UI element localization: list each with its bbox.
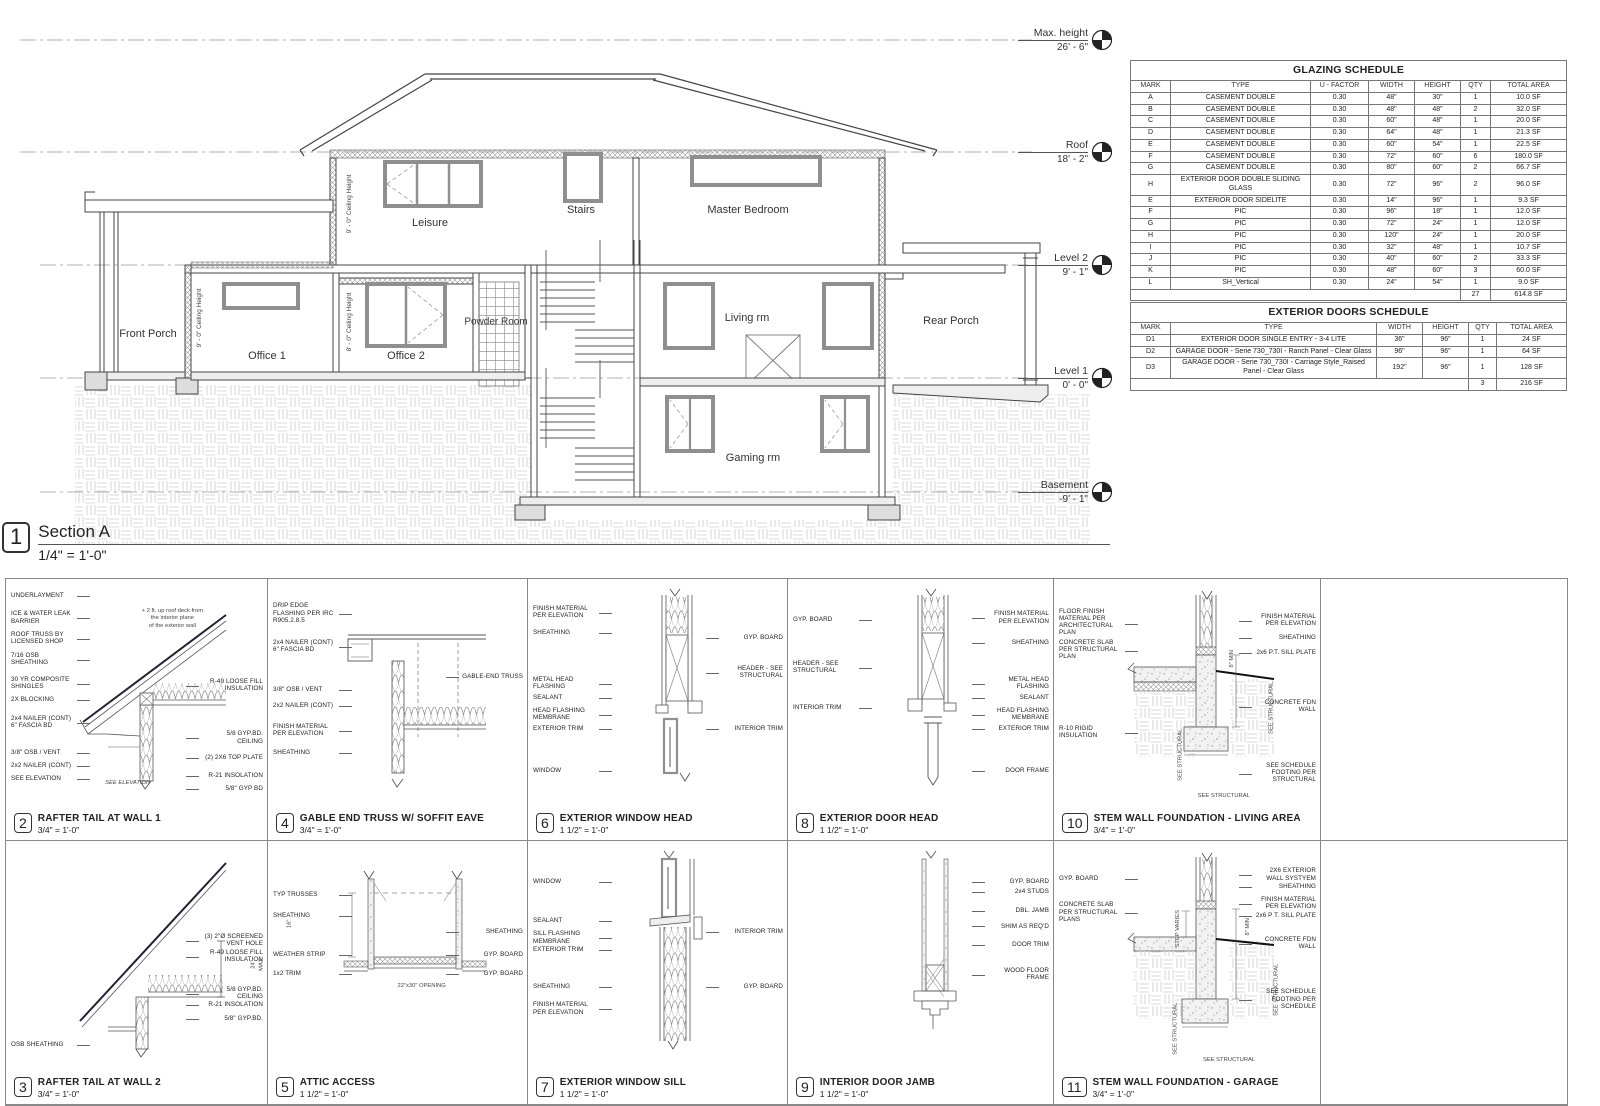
detail-annotation: CONCRETE FDN WALL (1252, 699, 1316, 713)
table-cell: 0.30 (1311, 163, 1369, 175)
level-datum-icon (1091, 141, 1113, 163)
detail-number-badge: 7 (536, 1077, 554, 1097)
detail-number-badge: 5 (276, 1077, 294, 1097)
detail-titleblock: 5ATTIC ACCESS1 1/2" = 1'-0" (276, 1077, 375, 1099)
level-elevation: -9' - 1" (1018, 493, 1088, 505)
detail-annotation: CONCRETE FDN WALL (1252, 936, 1316, 950)
detail-annotation: 5/8" GYP.BD. (199, 1015, 263, 1022)
detail-annotation: SEALANT (985, 694, 1049, 701)
detail-titleblock: 4GABLE END TRUSS W/ SOFFIT EAVE3/4" = 1'… (276, 813, 484, 835)
detail-title: STEM WALL FOUNDATION - GARAGE (1093, 1077, 1279, 1088)
detail-annotation: 7/16 OSB SHEATHING (11, 652, 77, 666)
detail-annotation: ICE & WATER LEAK BARRIER (11, 610, 77, 624)
detail-annotation: GYP. BOARD (719, 634, 783, 641)
detail-annotation: GYP. BOARD (459, 970, 523, 977)
table-cell: F (1131, 207, 1171, 219)
table-row: EEXTERIOR DOOR SIDELITE0.3014"96"19.3 SF (1131, 195, 1567, 207)
table-cell: 60" (1369, 116, 1415, 128)
table-cell: 120" (1369, 230, 1415, 242)
table-row: DCASEMENT DOUBLE0.3064"48"121.3 SF (1131, 128, 1567, 140)
table-cell: 48" (1415, 116, 1461, 128)
detail-title: RAFTER TAIL AT WALL 2 (38, 1077, 161, 1088)
table-cell: 96" (1423, 346, 1469, 358)
table-cell: D (1131, 128, 1171, 140)
drawing-sheet: Front PorchOffice 1Office 2Powder RoomLe… (0, 0, 1600, 1106)
detail-annotation: 3/8" OSB / VENT (273, 686, 339, 693)
detail-annotation: DRIP EDGE FLASHING PER IRC R905.2.8.5 (273, 602, 339, 624)
detail-scale: 3/4" = 1'-0" (38, 825, 161, 835)
table-cell: CASEMENT DOUBLE (1171, 163, 1311, 175)
table-cell: 48" (1369, 92, 1415, 104)
detail-annotation: 5/8 GYP.BD. CEILING (199, 730, 263, 744)
detail-annotation: 1x2 TRIM (273, 970, 339, 977)
detail-note: SEE STRUCTURAL (1203, 1057, 1255, 1065)
table-cell: 1 (1461, 219, 1491, 231)
detail-title: ATTIC ACCESS (300, 1077, 375, 1088)
detail-number-badge: 11 (1062, 1077, 1087, 1097)
table-cell: 14" (1369, 195, 1415, 207)
detail-annotation: SHEATHING (1252, 634, 1316, 641)
detail-annotation: SHEATHING (273, 749, 339, 756)
table-cell: 0.30 (1311, 116, 1369, 128)
detail-note: SEE STRUCTURAL (1198, 793, 1250, 801)
table-cell: 24 SF (1497, 334, 1567, 346)
table-cell: D1 (1131, 334, 1171, 346)
detail-titleblock: 3RAFTER TAIL AT WALL 23/4" = 1'-0" (14, 1077, 161, 1099)
detail-annotation: GYP. BOARD (985, 878, 1049, 885)
detail-annotation: SHEATHING (1252, 883, 1316, 890)
level-datum-icon (1091, 254, 1113, 276)
table-cell: EXTERIOR DOOR DOUBLE SLIDING GLASS (1171, 175, 1311, 196)
detail-annotation: METAL HEAD FLASHING (533, 676, 599, 690)
level-name: Level 2 (1018, 252, 1088, 266)
section-a-drawing: Front PorchOffice 1Office 2Powder RoomLe… (0, 0, 1110, 578)
detail-annotation: EXTERIOR TRIM (985, 725, 1049, 732)
table-cell: 96" (1415, 175, 1461, 196)
table-cell: PIC (1171, 230, 1311, 242)
detail-note: SEE STRUCTURAL (1177, 729, 1185, 781)
table-cell: 1 (1461, 195, 1491, 207)
ceiling-height-label: 8' - 0" Ceiling Height (346, 293, 354, 352)
detail-note: 22"x30" OPENING (398, 983, 446, 991)
detail-annotation: GYP. BOARD (1059, 875, 1125, 882)
detail-annotation: SEALANT (533, 917, 599, 924)
table-cell: 180.0 SF (1491, 151, 1567, 163)
table-cell: 96.0 SF (1491, 175, 1567, 196)
detail-annotation: (3) 2"Ø SCREENED VENT HOLE (199, 933, 263, 947)
table-cell: 66.7 SF (1491, 163, 1567, 175)
detail-annotation: SHEATHING (533, 629, 599, 636)
table-cell: 48" (1415, 242, 1461, 254)
detail-sketch (600, 849, 750, 1059)
detail-titleblock: 2RAFTER TAIL AT WALL 13/4" = 1'-0" (14, 813, 161, 835)
detail-annotation: SHEATHING (459, 928, 523, 935)
detail-cell-9: GYP. BOARD2x4 STUDSDBL. JAMBSHIM AS REQ'… (788, 841, 1054, 1105)
detail-cell-7: WINDOWSEALANTSILL FLASHING MEMBRANEEXTER… (528, 841, 788, 1105)
detail-number-badge: 10 (1062, 813, 1088, 833)
table-cell: 0.30 (1311, 175, 1369, 196)
detail-scale: 1 1/2" = 1'-0" (560, 1089, 686, 1099)
detail-annotation: SHEATHING (273, 912, 339, 919)
table-cell: 24" (1415, 219, 1461, 231)
section-scale: 1/4" = 1'-0" (38, 545, 1110, 563)
detail-cell-5: TYP TRUSSESSHEATHINGWEATHER STRIP1x2 TRI… (268, 841, 528, 1105)
detail-cell-10: FLOOR FINISH MATERIAL PER ARCHITECTURAL … (1054, 579, 1321, 841)
column-header: U - FACTOR (1311, 81, 1369, 93)
table-cell: 54" (1415, 277, 1461, 289)
table-cell: D3 (1131, 358, 1171, 379)
column-header: TYPE (1171, 81, 1311, 93)
detail-titleblock: 7EXTERIOR WINDOW SILL1 1/2" = 1'-0" (536, 1077, 686, 1099)
total-qty: 27 (1461, 289, 1491, 301)
table-row: D1EXTERIOR DOOR SINGLE ENTRY - 3-4 LITE3… (1131, 334, 1567, 346)
table-cell: 1 (1461, 242, 1491, 254)
detail-cell-11: GYP. BOARDCONCRETE SLAB PER STRUCTURAL P… (1054, 841, 1321, 1105)
level-datum-icon (1091, 367, 1113, 389)
detail-annotation: 2x6 P T. SILL PLATE (1252, 912, 1316, 919)
detail-annotation: 5/8" GYP BD (199, 785, 263, 792)
doors-schedule-title: EXTERIOR DOORS SCHEDULE (1131, 303, 1567, 323)
detail-annotation: SEE SCHEDULE FOOTING PER SCHEDULE (1252, 988, 1316, 1010)
totals-blank (1131, 378, 1469, 390)
detail-cell-3: OSB SHEATHING(3) 2"Ø SCREENED VENT HOLER… (6, 841, 268, 1105)
table-cell: 48" (1415, 104, 1461, 116)
detail-annotation: 2x4 NAILER (CONT) 6" FASCIA BD (11, 715, 77, 729)
table-cell: 0.30 (1311, 266, 1369, 278)
detail-scale: 3/4" = 1'-0" (38, 1089, 161, 1099)
table-cell: 40" (1369, 254, 1415, 266)
detail-annotation: FINISH MATERIAL PER ELEVATION (1252, 613, 1316, 627)
detail-scale: 3/4" = 1'-0" (1093, 1089, 1279, 1099)
table-cell: J (1131, 254, 1171, 266)
level-name: Roof (1018, 139, 1088, 153)
table-cell: CASEMENT DOUBLE (1171, 92, 1311, 104)
table-cell: 6 (1461, 151, 1491, 163)
table-cell: 128 SF (1497, 358, 1567, 379)
table-cell: 0.30 (1311, 195, 1369, 207)
table-cell: 9.0 SF (1491, 277, 1567, 289)
level-elevation: 9' - 1" (1018, 266, 1088, 278)
table-cell: 60" (1369, 139, 1415, 151)
detail-annotation: EXTERIOR TRIM (533, 725, 599, 732)
detail-scale: 1 1/2" = 1'-0" (820, 1089, 935, 1099)
table-cell: 36" (1377, 334, 1423, 346)
level-elevation: 18' - 2" (1018, 153, 1088, 165)
table-cell: H (1131, 175, 1171, 196)
detail-annotation: SHEATHING (533, 983, 599, 990)
table-cell: 12.0 SF (1491, 219, 1567, 231)
detail-number-badge: 3 (14, 1077, 32, 1097)
table-cell: 96" (1423, 358, 1469, 379)
table-cell: 21.3 SF (1491, 128, 1567, 140)
table-row: GPIC0.3072"24"112.0 SF (1131, 219, 1567, 231)
room-label-office-1: Office 1 (248, 350, 286, 362)
table-cell: GARAGE DOOR - Serie 730_730I - Ranch Pan… (1171, 346, 1377, 358)
table-row: HPIC0.30120"24"120.0 SF (1131, 230, 1567, 242)
table-cell: G (1131, 219, 1171, 231)
detail-annotation: DOOR FRAME (985, 767, 1049, 774)
detail-annotation: HEADER - SEE STRUCTURAL (719, 665, 783, 679)
section-titleblock: 1 Section A 1/4" = 1'-0" (2, 522, 1110, 563)
table-cell: 1 (1461, 207, 1491, 219)
table-cell: PIC (1171, 219, 1311, 231)
table-row: CCASEMENT DOUBLE0.3060"48"120.0 SF (1131, 116, 1567, 128)
detail-note: + 2 ft. up roof deck from the interior p… (142, 608, 203, 631)
table-cell: 1 (1461, 139, 1491, 151)
detail-sketch (600, 587, 750, 797)
detail-cell-4: DRIP EDGE FLASHING PER IRC R905.2.8.52x4… (268, 579, 528, 841)
table-cell: 10.0 SF (1491, 92, 1567, 104)
table-cell: 0.30 (1311, 151, 1369, 163)
room-label-master-bedroom: Master Bedroom (707, 204, 788, 216)
detail-annotation: R-10 RIGID INSULATION (1059, 725, 1125, 739)
section-title: Section A (38, 522, 1110, 545)
table-cell: 3 (1461, 266, 1491, 278)
table-cell: 22.5 SF (1491, 139, 1567, 151)
room-label-gaming-rm: Gaming rm (726, 452, 780, 464)
detail-note: 8" MIN (1245, 918, 1253, 936)
detail-scale: 1 1/2" = 1'-0" (820, 825, 939, 835)
detail-annotation: SEE SCHEDULE FOOTING PER STRUCTURAL (1252, 762, 1316, 784)
total-qty: 3 (1469, 378, 1497, 390)
table-cell: 96" (1377, 346, 1423, 358)
detail-cell-6: FINISH MATERIAL PER ELEVATIONSHEATHINGME… (528, 579, 788, 841)
table-cell: 48" (1415, 128, 1461, 140)
detail-annotation: SHIM AS REQ'D (985, 923, 1049, 930)
table-cell: 18" (1415, 207, 1461, 219)
detail-annotation: 2x6 P.T. SILL PLATE (1252, 649, 1316, 656)
table-cell: 2 (1461, 163, 1491, 175)
detail-titleblock: 6EXTERIOR WINDOW HEAD1 1/2" = 1'-0" (536, 813, 693, 835)
detail-annotation: HEADER - SEE STRUCTURAL (793, 660, 859, 674)
column-header: HEIGHT (1415, 81, 1461, 93)
table-row: FCASEMENT DOUBLE0.3072"60"6180.0 SF (1131, 151, 1567, 163)
table-cell: 1 (1469, 358, 1497, 379)
table-cell: G (1131, 163, 1171, 175)
table-cell: 12.0 SF (1491, 207, 1567, 219)
table-cell: 0.30 (1311, 92, 1369, 104)
table-cell: 2 (1461, 104, 1491, 116)
level-elevation: 0' - 0" (1018, 379, 1088, 391)
glazing-schedule-table: GLAZING SCHEDULE MARKTYPEU - FACTORWIDTH… (1130, 60, 1567, 301)
table-cell: 48" (1369, 266, 1415, 278)
table-cell: 0.30 (1311, 104, 1369, 116)
detail-annotation: FINISH MATERIAL PER ELEVATION (1252, 896, 1316, 910)
table-cell: 1 (1461, 116, 1491, 128)
detail-sketch (340, 587, 490, 797)
detail-annotation: INTERIOR TRIM (719, 928, 783, 935)
table-row: D3GARAGE DOOR - Serie 730_730I - Carriag… (1131, 358, 1567, 379)
table-cell: 0.30 (1311, 242, 1369, 254)
table-row: KPIC0.3048"60"360.0 SF (1131, 266, 1567, 278)
room-label-front-porch: Front Porch (119, 328, 176, 340)
table-cell: 96" (1369, 207, 1415, 219)
column-header: TYPE (1171, 323, 1377, 335)
level-marker-level-1: Level 10' - 0" (1018, 365, 1088, 391)
table-row: LSH_Vertical0.3024"54"19.0 SF (1131, 277, 1567, 289)
detail-annotation: SILL FLASHING MEMBRANE (533, 930, 599, 944)
column-header: TOTAL AREA (1491, 81, 1567, 93)
detail-annotation: 2x2 NAILER (CONT) (273, 702, 339, 709)
detail-titleblock: 8EXTERIOR DOOR HEAD1 1/2" = 1'-0" (796, 813, 938, 835)
table-cell: E (1131, 195, 1171, 207)
level-datum-icon (1091, 29, 1113, 51)
detail-annotation: FINISH MATERIAL PER ELEVATION (533, 1001, 599, 1015)
totals-blank (1131, 289, 1461, 301)
detail-annotation: GYP. BOARD (719, 983, 783, 990)
table-cell: 20.0 SF (1491, 116, 1567, 128)
table-cell: 48" (1369, 104, 1415, 116)
detail-annotation: DBL. JAMB (985, 907, 1049, 914)
table-cell: I (1131, 242, 1171, 254)
detail-note: STEP VARIES (1175, 910, 1183, 947)
detail-cell-empty (1321, 579, 1568, 841)
detail-title: STEM WALL FOUNDATION - LIVING AREA (1094, 813, 1301, 824)
detail-scale: 3/4" = 1'-0" (1094, 825, 1301, 835)
detail-note: SEE STRUCTURAL (1268, 682, 1276, 734)
table-cell: 0.30 (1311, 219, 1369, 231)
table-cell: 1 (1461, 277, 1491, 289)
detail-note: 16" (287, 919, 295, 928)
detail-title: EXTERIOR WINDOW SILL (560, 1077, 686, 1088)
detail-annotation: 2x4 STUDS (985, 888, 1049, 895)
detail-number-badge: 8 (796, 813, 814, 833)
detail-annotation: R-21 INSOLATION (199, 1001, 263, 1008)
level-marker-max-height: Max. height26' - 6" (1018, 27, 1088, 53)
table-cell: 32.0 SF (1491, 104, 1567, 116)
table-cell: L (1131, 277, 1171, 289)
detail-annotation: HEAD FLASHING MEMBRANE (533, 707, 599, 721)
detail-scale: 1 1/2" = 1'-0" (300, 1089, 375, 1099)
table-cell: 33.3 SF (1491, 254, 1567, 266)
table-cell: K (1131, 266, 1171, 278)
detail-number-badge: 6 (536, 813, 554, 833)
detail-annotation: CONCRETE SLAB PER STRUCTURAL PLANS (1059, 901, 1125, 923)
table-cell: 1 (1469, 346, 1497, 358)
detail-number-badge: 4 (276, 813, 294, 833)
column-header: QTY (1461, 81, 1491, 93)
totals-row: 3216 SF (1131, 378, 1567, 390)
table-cell: 0.30 (1311, 230, 1369, 242)
table-cell: PIC (1171, 266, 1311, 278)
doors-schedule-table: EXTERIOR DOORS SCHEDULE MARKTYPEWIDTHHEI… (1130, 302, 1567, 391)
column-header: MARK (1131, 81, 1171, 93)
detail-annotation: ROOF TRUSS BY LICENSED SHOP (11, 631, 77, 645)
detail-annotation: WOOD FLOOR FRAME (985, 967, 1049, 981)
table-row: BCASEMENT DOUBLE0.3048"48"232.0 SF (1131, 104, 1567, 116)
table-cell: CASEMENT DOUBLE (1171, 128, 1311, 140)
table-cell: CASEMENT DOUBLE (1171, 151, 1311, 163)
detail-annotation: SEE ELEVATION (11, 775, 77, 782)
detail-annotation: FINISH MATERIAL PER ELEVATION (273, 723, 339, 737)
table-cell: 96" (1415, 195, 1461, 207)
table-cell: 72" (1369, 151, 1415, 163)
detail-annotation: WINDOW (533, 878, 599, 885)
table-cell: 60" (1415, 163, 1461, 175)
room-label-rear-porch: Rear Porch (923, 315, 979, 327)
column-header: WIDTH (1377, 323, 1423, 335)
detail-annotation: TYP TRUSSES (273, 891, 339, 898)
table-row: JPIC0.3040"60"233.3 SF (1131, 254, 1567, 266)
table-cell: 1 (1461, 92, 1491, 104)
room-label-leisure: Leisure (412, 217, 448, 229)
total-area: 614.8 SF (1491, 289, 1567, 301)
table-cell: 0.30 (1311, 139, 1369, 151)
detail-annotation: SHEATHING (985, 639, 1049, 646)
detail-annotation: 2X BLOCKING (11, 696, 77, 703)
room-label-stairs: Stairs (567, 204, 595, 216)
table-cell: 60" (1415, 254, 1461, 266)
table-cell: 2 (1461, 175, 1491, 196)
table-cell: 1 (1461, 230, 1491, 242)
table-cell: H (1131, 230, 1171, 242)
detail-scale: 1 1/2" = 1'-0" (560, 825, 693, 835)
table-cell: 1 (1461, 128, 1491, 140)
table-cell: PIC (1171, 207, 1311, 219)
column-header: WIDTH (1369, 81, 1415, 93)
table-cell: B (1131, 104, 1171, 116)
detail-note: 8" MIN (1229, 650, 1237, 668)
detail-annotation: OSB SHEATHING (11, 1041, 77, 1048)
detail-annotation: CONCRETE SLAB PER STRUCTURAL PLAN (1059, 639, 1125, 661)
detail-annotation: (2) 2X6 TOP PLATE (199, 754, 263, 761)
detail-annotation: R-49 LOOSE FILL INSULATION (199, 678, 263, 692)
table-cell: PIC (1171, 254, 1311, 266)
room-label-powder-room: Powder Room (464, 317, 527, 328)
details-grid: UNDERLAYMENTICE & WATER LEAK BARRIERROOF… (5, 578, 1568, 1106)
table-cell: 72" (1369, 219, 1415, 231)
level-datum-icon (1091, 481, 1113, 503)
detail-scale: 3/4" = 1'-0" (300, 825, 484, 835)
table-cell: 64" (1369, 128, 1415, 140)
detail-cell-8: GYP. BOARDHEADER - SEE STRUCTURALINTERIO… (788, 579, 1054, 841)
level-elevation: 26' - 6" (1018, 41, 1088, 53)
section-number-badge: 1 (2, 522, 30, 553)
detail-note: 24" MAX (250, 955, 265, 973)
detail-annotation: GYP. BOARD (793, 616, 859, 623)
table-cell: CASEMENT DOUBLE (1171, 116, 1311, 128)
room-label-office-2: Office 2 (387, 350, 425, 362)
table-cell: EXTERIOR DOOR SINGLE ENTRY - 3-4 LITE (1171, 334, 1377, 346)
section-linework (0, 0, 1110, 578)
detail-note: SEE ELEVATION (105, 780, 150, 788)
table-cell: 32" (1369, 242, 1415, 254)
ceiling-height-label: 9' - 0" Ceiling Height (346, 175, 354, 234)
level-marker-roof: Roof18' - 2" (1018, 139, 1088, 165)
table-cell: 0.30 (1311, 254, 1369, 266)
table-row: HEXTERIOR DOOR DOUBLE SLIDING GLASS0.307… (1131, 175, 1567, 196)
detail-annotation: FINISH MATERIAL PER ELEVATION (533, 605, 599, 619)
column-header: HEIGHT (1423, 323, 1469, 335)
total-area: 216 SF (1497, 378, 1567, 390)
detail-annotation: UNDERLAYMENT (11, 592, 77, 599)
detail-number-badge: 9 (796, 1077, 814, 1097)
detail-annotation: 30 YR COMPOSITE SHINGLES (11, 676, 77, 690)
detail-annotation: FINISH MATERIAL PER ELEVATION (985, 610, 1049, 624)
detail-note: SEE STRUCTURAL (1172, 1003, 1180, 1055)
level-name: Level 1 (1018, 365, 1088, 379)
detail-annotation: INTERIOR TRIM (793, 704, 859, 711)
table-cell: EXTERIOR DOOR SIDELITE (1171, 195, 1311, 207)
table-cell: PIC (1171, 242, 1311, 254)
table-cell: SH_Vertical (1171, 277, 1311, 289)
detail-annotation: HEAD FLASHING MEMBRANE (985, 707, 1049, 721)
level-marker-level-2: Level 29' - 1" (1018, 252, 1088, 278)
detail-cell-2: UNDERLAYMENTICE & WATER LEAK BARRIERROOF… (6, 579, 268, 841)
detail-annotation: WEATHER STRIP (273, 951, 339, 958)
table-row: FPIC0.3096"18"112.0 SF (1131, 207, 1567, 219)
table-cell: 64 SF (1497, 346, 1567, 358)
